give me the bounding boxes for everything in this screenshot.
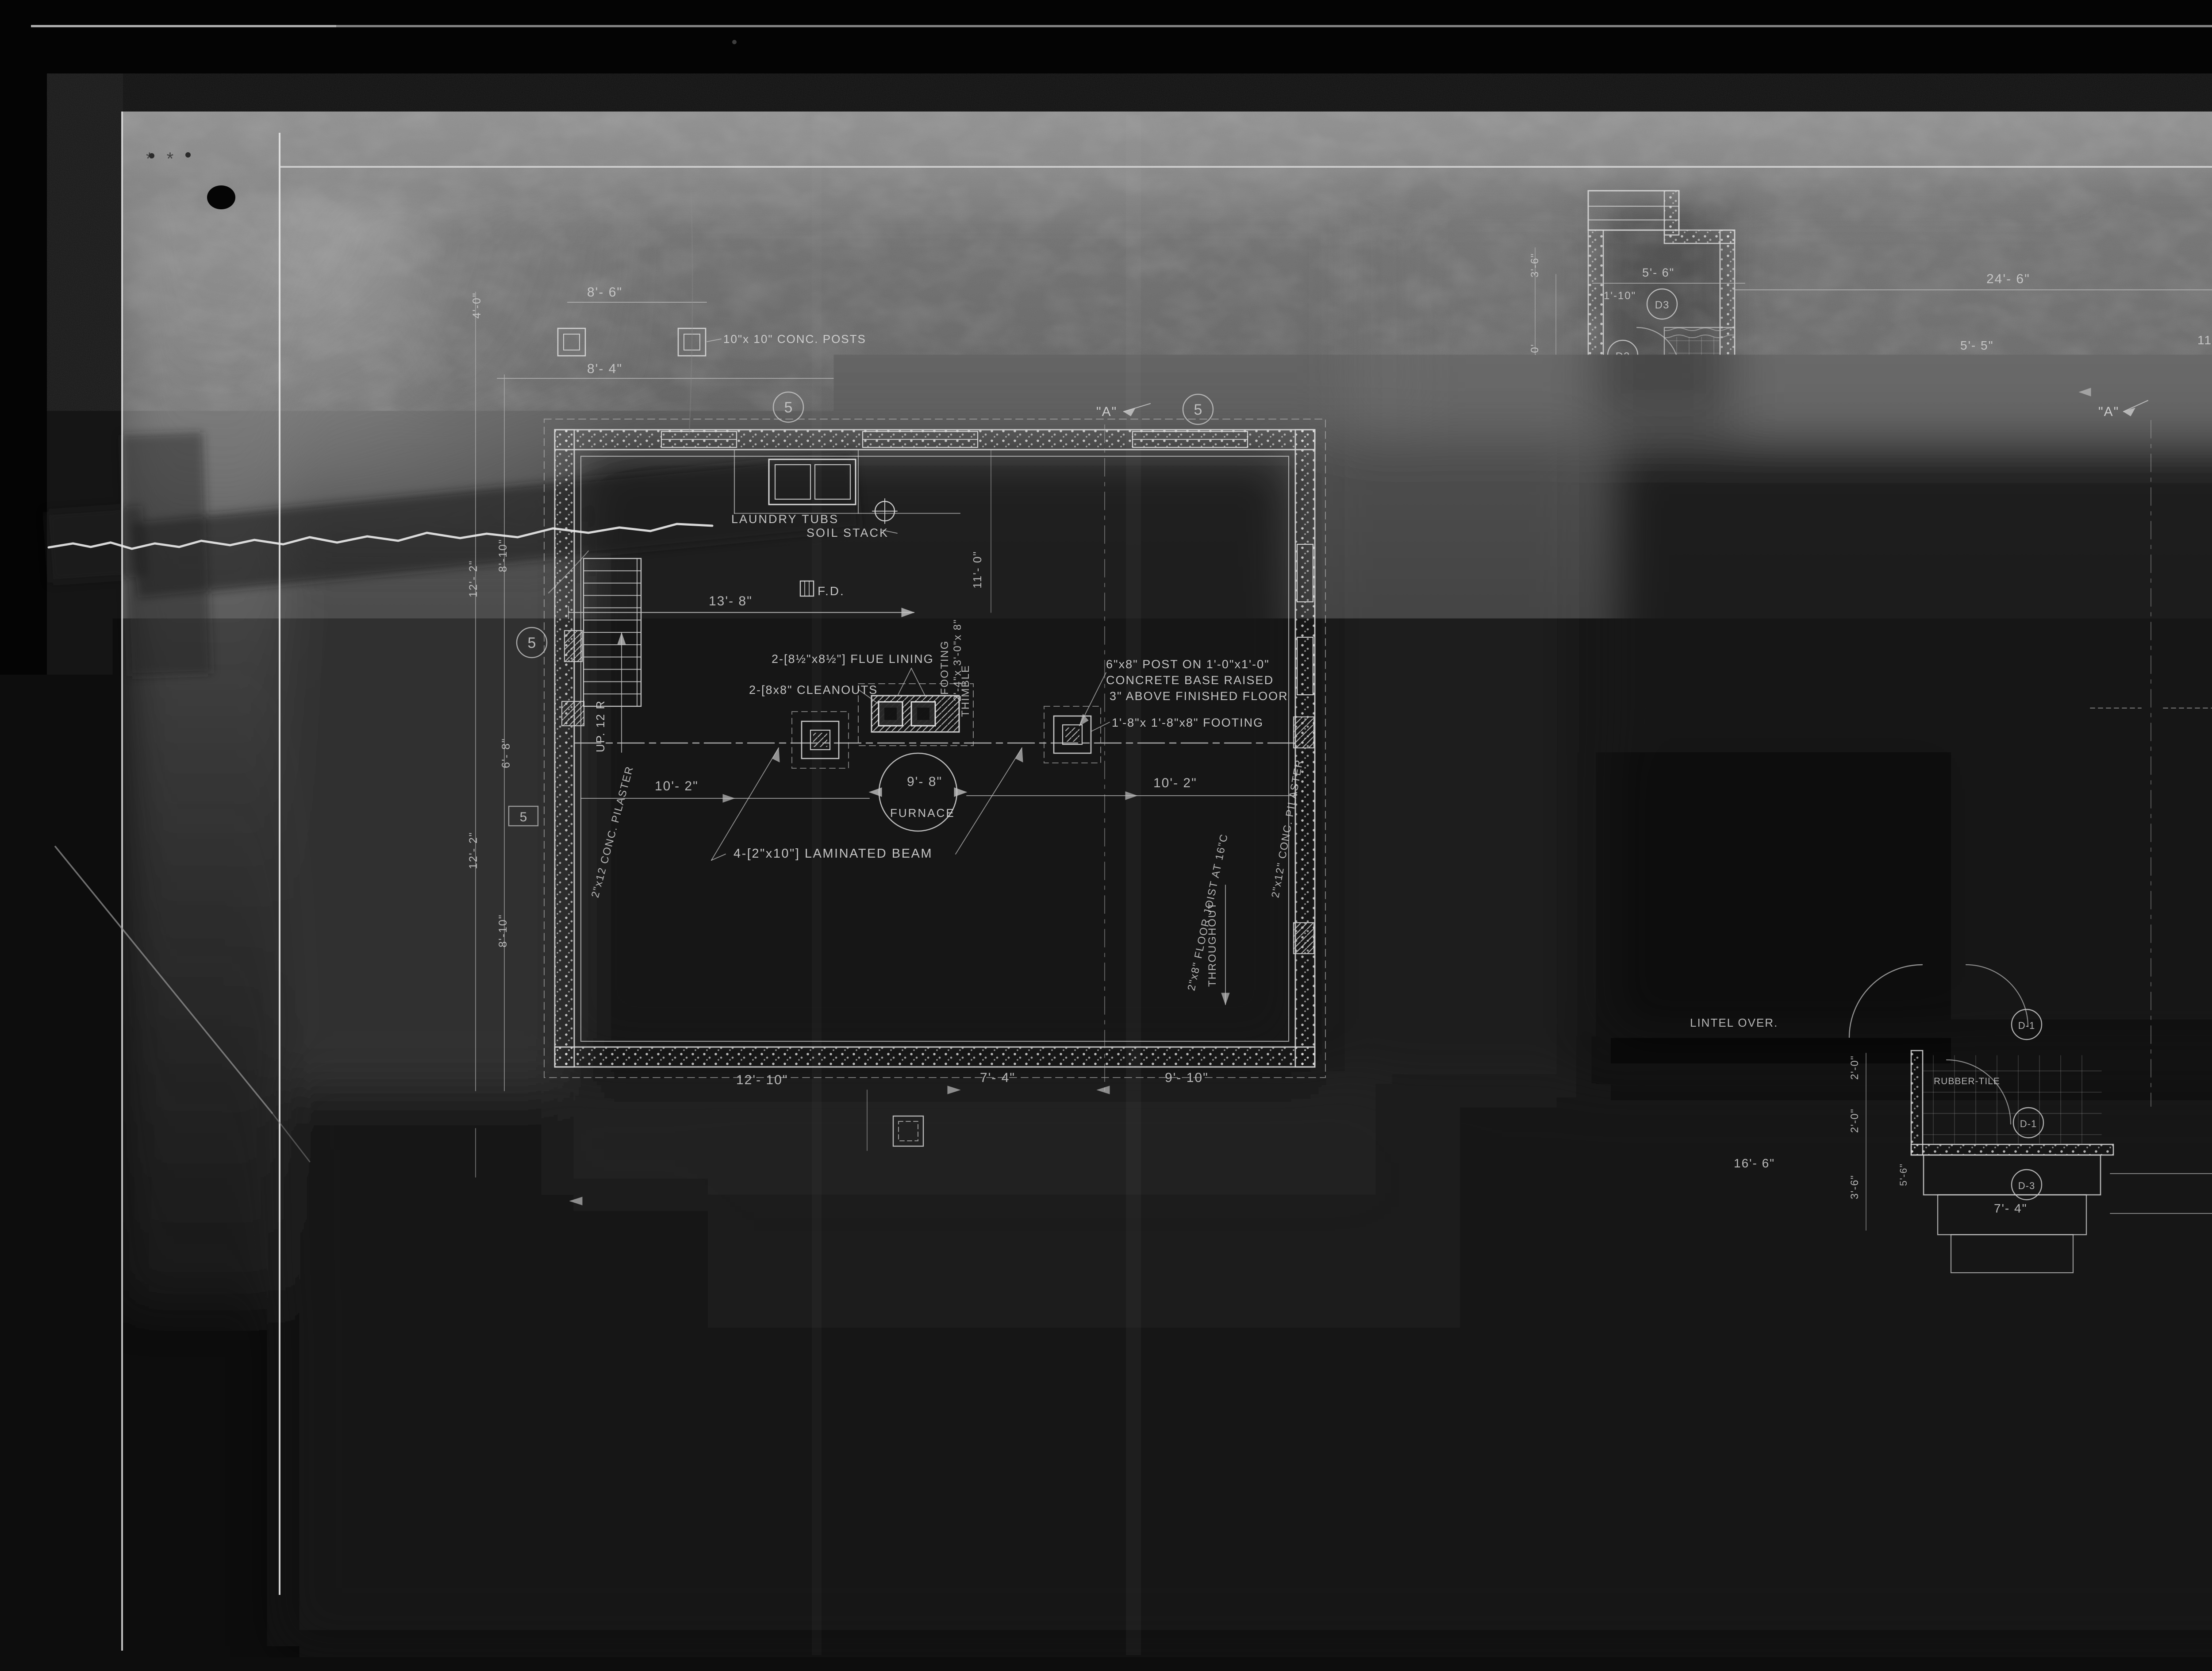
svg-text:6'- 6": 6'- 6" (1749, 376, 1782, 389)
svg-text:CLOS.: CLOS. (1971, 834, 2006, 845)
svg-text:UP. 12 R: UP. 12 R (594, 700, 607, 752)
svg-text:9'- 8": 9'- 8" (907, 774, 942, 789)
svg-text:8'- 0": 8'- 0" (1884, 374, 1916, 388)
svg-text:7'- 4": 7'- 4" (980, 1070, 1015, 1085)
svg-text:BATH RM.: BATH RM. (1943, 473, 2020, 488)
svg-text:G.I. VALLEY FLASHING: G.I. VALLEY FLASHING (1080, 1629, 1236, 1642)
svg-text:3'-6": 3'-6" (1849, 1175, 1861, 1199)
svg-text:6'- 8": 6'- 8" (500, 738, 512, 768)
svg-text:210# ASPHALT SHINGLES: 210# ASPHALT SHINGLES (919, 1574, 1093, 1587)
svg-text:2-[8½"x8½"] FLUE LINING: 2-[8½"x8½"] FLUE LINING (772, 652, 934, 666)
svg-text:D-7: D-7 (1989, 636, 2006, 646)
svg-text:3'-6": 3'-6" (1529, 253, 1541, 277)
svg-text:8'- 4": 8'- 4" (587, 362, 622, 376)
svg-text:METAL ROOF VENTS: METAL ROOF VENTS (1155, 1508, 1296, 1521)
svg-text:7'-0": 7'-0" (1332, 487, 1344, 513)
svg-text:VITRIFIED FLUE LINING: VITRIFIED FLUE LINING (987, 1415, 1150, 1428)
svg-text:8'- 6": 8'- 6" (587, 285, 622, 300)
svg-text:9'- 6": 9'- 6" (1750, 706, 1782, 720)
svg-text:D5: D5 (1780, 733, 1795, 745)
svg-text:10'- 2": 10'- 2" (655, 779, 699, 793)
svg-text:8'-10": 8'-10" (497, 914, 509, 947)
svg-text:8'-10": 8'-10" (497, 539, 509, 572)
svg-text:LINTEL OVER.: LINTEL OVER. (1690, 1016, 1778, 1029)
svg-text:ROD: ROD (1972, 875, 1994, 885)
svg-text:CUPB OVER: CUPB OVER (1685, 583, 1695, 642)
svg-text:12'- 2": 12'- 2" (467, 832, 480, 869)
svg-text:D-3: D-3 (2018, 1180, 2035, 1191)
svg-text:7'- 10": 7'- 10" (2096, 373, 2136, 386)
svg-text:D4: D4 (1673, 489, 1687, 501)
svg-text:14'- 6": 14'- 6" (1711, 917, 1752, 931)
svg-text:VESTIBULE: VESTIBULE (1973, 955, 2053, 968)
svg-text:D2: D2 (1616, 350, 1630, 362)
svg-text:D2: D2 (1615, 454, 1630, 466)
svg-text:ROOF PITCH: ROOF PITCH (1442, 1537, 1516, 1549)
svg-text:5: 5 (1344, 848, 1352, 865)
svg-text:13'- 8": 13'- 8" (709, 594, 753, 608)
svg-text:RUBBER: RUBBER (1706, 642, 1760, 655)
svg-text:* *: * * (146, 149, 178, 169)
svg-text:5: 5 (520, 810, 527, 824)
svg-text:5: 5 (784, 399, 793, 416)
svg-text:24'- 4": 24'- 4" (1361, 715, 1373, 752)
svg-text:12'- 2": 12'- 2" (467, 560, 480, 597)
svg-text:10'- 2": 10'- 2" (1153, 776, 1197, 790)
svg-text:4'- 0": 4'- 0" (1979, 927, 2008, 939)
svg-text:5'- 5": 5'- 5" (1960, 339, 1994, 352)
svg-text:RUBBER-TILE: RUBBER-TILE (1985, 494, 1995, 558)
svg-text:ROD: ROD (2028, 922, 2051, 932)
svg-text:2'-0': 2'-0' (1529, 344, 1541, 366)
svg-text:4-[2"x10"] LAMINATED BEAM: 4-[2"x10"] LAMINATED BEAM (733, 847, 933, 861)
svg-text:RUBBER-TILE: RUBBER-TILE (1934, 1076, 2000, 1086)
svg-text:"A": "A" (2098, 404, 2119, 419)
svg-text:210# ASPHALT SHINGLES: 210# ASPHALT SHINGLES (2124, 1588, 2212, 1601)
svg-text:THROUGHOUT: THROUGHOUT (1206, 902, 1218, 987)
svg-text:5'- 6": 5'- 6" (1642, 266, 1674, 279)
svg-text:2'-0": 2'-0" (1849, 1055, 1861, 1080)
svg-text:11'- 6": 11'- 6" (2206, 916, 2212, 930)
svg-text:6: 6 (1418, 1553, 1424, 1565)
svg-text:4'-0": 4'-0" (471, 292, 483, 319)
svg-text:11'- 0": 11'- 0" (1807, 551, 1820, 589)
svg-text:5'-6": 5'-6" (1898, 1163, 1909, 1186)
svg-text:D-7: D-7 (1993, 809, 2009, 820)
svg-text:CLOSET: CLOSET (2113, 707, 2161, 719)
svg-text:10'-5": 10'-5" (1529, 539, 1541, 570)
svg-text:-12'- 2": -12'- 2" (1530, 831, 1542, 870)
svg-text:16'- 6": 16'- 6" (1734, 1156, 1775, 1170)
svg-text:10"x 10" CONC. POSTS: 10"x 10" CONC. POSTS (723, 332, 866, 346)
svg-text:ROOF VENT: ROOF VENT (1993, 1530, 2075, 1544)
svg-text:D-7: D-7 (2124, 690, 2140, 701)
svg-text:13'- 8": 13'- 8" (1750, 770, 1791, 784)
svg-text:FOOTING: FOOTING (939, 640, 951, 695)
svg-text:SHELVES: SHELVES (1927, 663, 1981, 675)
svg-text:2": 2" (1637, 756, 1649, 768)
svg-text:2- 2"x6": 2- 2"x6" (1620, 1016, 1667, 1029)
svg-text:15'- 10": 15'- 10" (938, 362, 990, 377)
svg-text:COLLAR: COLLAR (1828, 686, 1880, 698)
svg-text:1'-11": 1'-11" (1530, 705, 1542, 735)
svg-text:8'-8": 8'-8" (1337, 708, 1349, 735)
svg-text:"A": "A" (1096, 404, 1117, 419)
svg-text:12'- 10": 12'- 10" (1742, 1196, 1791, 1210)
svg-text:1'-10": 1'-10" (1604, 290, 1636, 302)
svg-text:LINEN: LINEN (1929, 647, 1965, 658)
svg-text:D-1: D-1 (2020, 1118, 2037, 1129)
svg-text:5: 5 (1194, 401, 1202, 418)
svg-text:30'- 0": 30'- 0" (972, 1183, 1015, 1198)
svg-text:BIRCH FLOORING: BIRCH FLOORING (2101, 853, 2212, 866)
svg-text:7'- 2": 7'- 2" (2014, 527, 2027, 558)
svg-text:KITCHEN: KITCHEN (1737, 503, 1808, 517)
svg-text:12: 12 (1436, 1518, 1450, 1532)
svg-text:REFRIG.: REFRIG. (1719, 590, 1730, 633)
svg-text:LAUNDRY TUBS: LAUNDRY TUBS (731, 512, 839, 526)
svg-text:2'-4"x 3'-0"x 8": 2'-4"x 3'-0"x 8" (952, 619, 964, 701)
svg-text:7'- 4": 7'- 4" (1994, 1201, 2028, 1215)
svg-text:D4: D4 (1873, 986, 1888, 998)
svg-text:24'- 6": 24'- 6" (1986, 272, 2030, 286)
svg-text:4'- 0": 4'- 0" (849, 1096, 861, 1127)
svg-text:D6: D6 (2024, 597, 2038, 609)
svg-text:"A": "A" (1094, 1104, 1115, 1118)
svg-text:F.D.: F.D. (818, 584, 845, 598)
svg-text:CONTINUOUS VENT: CONTINUOUS VENT (854, 1644, 989, 1658)
svg-text:TILE: TILE (1765, 642, 1794, 655)
svg-text:G.I. VALLEY FLASHING: G.I. VALLEY FLASHING (2052, 1573, 2208, 1586)
svg-text:2'-0': 2'-0' (1529, 412, 1541, 435)
svg-text:8'-8": 8'-8" (1337, 912, 1349, 938)
svg-text:2" AIR SPACE: 2" AIR SPACE (1831, 753, 1920, 766)
svg-text:METAL ROOF: METAL ROOF (2208, 1490, 2212, 1504)
svg-text:LIVING ROOM: LIVING ROOM (1631, 979, 1760, 996)
svg-text:11'- 0": 11'- 0" (971, 551, 984, 589)
svg-text:FURNACE: FURNACE (890, 806, 955, 820)
svg-text:9'- 10": 9'- 10" (1165, 1070, 1209, 1085)
svg-text:BIRCH FLOORING: BIRCH FLOORING (1632, 853, 1756, 866)
svg-text:D3: D3 (1655, 299, 1670, 311)
svg-text:11'- 6": 11'- 6" (2197, 333, 2212, 347)
svg-text:12'- 10": 12'- 10" (736, 1073, 788, 1087)
svg-text:FIRST FLOOR PLAN: FIRST FLOOR PLAN (1607, 1288, 1796, 1307)
svg-text:5: 5 (528, 635, 536, 651)
svg-text:"6": "6" (1919, 411, 1933, 423)
svg-text:BASEMENT PLAN: BASEMENT PLAN (567, 1292, 772, 1315)
svg-text:DOWN 16 R: DOWN 16 R (1628, 568, 1639, 628)
svg-text:2'-0": 2'-0" (1849, 1109, 1861, 1133)
svg-text:BIRCH FLOORIN: BIRCH FLOORIN (2086, 546, 2199, 559)
svg-text:3'- 6": 3'- 6" (1628, 704, 1659, 716)
svg-text:5'- 10": 5'- 10" (1301, 362, 1345, 376)
svg-text:5: 5 (1341, 629, 1349, 646)
svg-text:SHELF: SHELF (2018, 875, 2051, 885)
svg-text:2'-0": 2'-0" (1997, 1434, 2008, 1456)
svg-text:D-1: D-1 (2018, 1020, 2035, 1031)
svg-text:2'-6"x2'-6" TRAP DOOR OVER: 2'-6"x2'-6" TRAP DOOR OVER (2063, 691, 2073, 819)
svg-text:"A": "A" (2165, 1095, 2185, 1109)
svg-text:D5: D5 (2080, 769, 2094, 781)
